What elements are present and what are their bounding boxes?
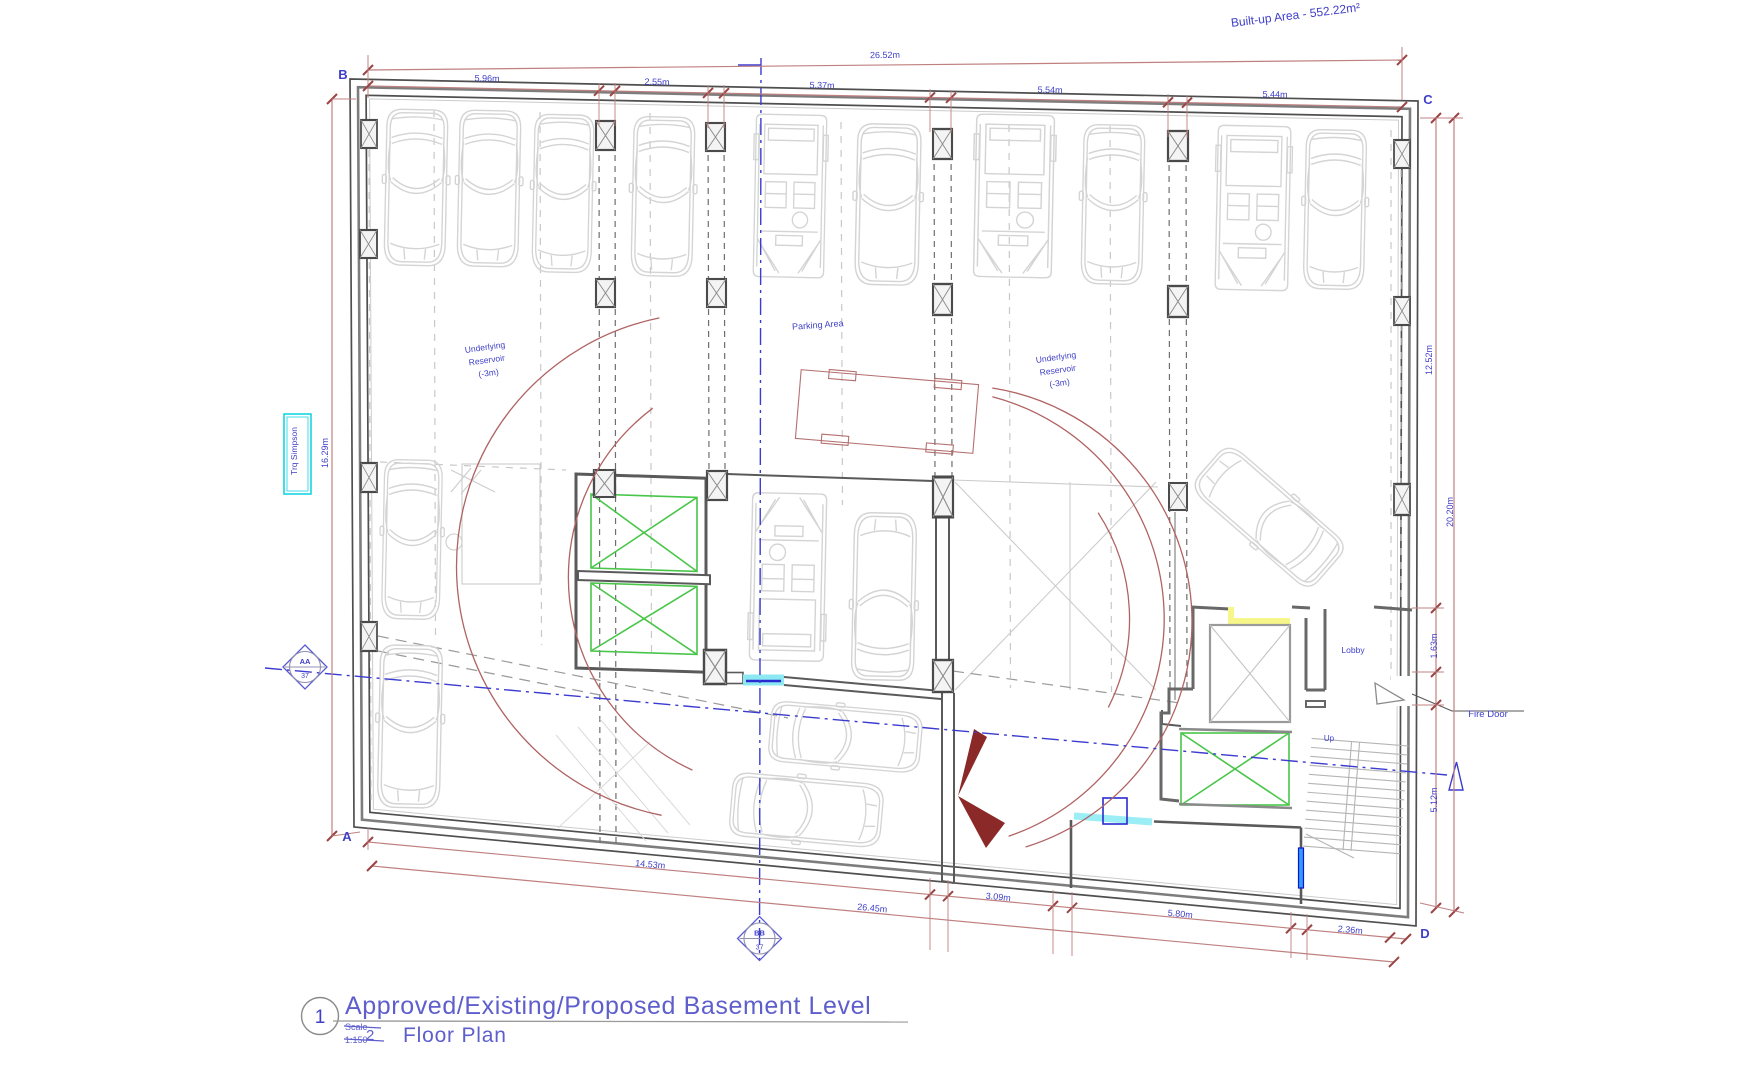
svg-text:2.55m: 2.55m bbox=[644, 77, 669, 88]
svg-text:A: A bbox=[342, 829, 352, 844]
svg-text:(-3m): (-3m) bbox=[478, 367, 500, 380]
svg-text:37: 37 bbox=[301, 673, 309, 680]
svg-text:Reservoir: Reservoir bbox=[1039, 363, 1077, 378]
svg-text:5.54m: 5.54m bbox=[1037, 85, 1062, 96]
svg-text:5.37m: 5.37m bbox=[809, 80, 834, 91]
svg-text:Parking Area: Parking Area bbox=[792, 318, 844, 332]
svg-text:12.52m: 12.52m bbox=[1424, 345, 1434, 375]
svg-text:1.63m: 1.63m bbox=[1429, 633, 1439, 658]
svg-text:BB: BB bbox=[754, 929, 765, 938]
svg-text:16.29m: 16.29m bbox=[320, 438, 330, 468]
svg-text:Trq Simpson: Trq Simpson bbox=[289, 427, 299, 475]
svg-text:2.36m: 2.36m bbox=[1337, 924, 1363, 936]
svg-text:14.53m: 14.53m bbox=[635, 858, 666, 871]
svg-text:C: C bbox=[1423, 92, 1433, 107]
svg-text:D: D bbox=[1420, 926, 1429, 941]
svg-text:Reservoir: Reservoir bbox=[468, 353, 506, 368]
svg-text:B: B bbox=[338, 67, 347, 82]
svg-text:37: 37 bbox=[756, 945, 764, 952]
svg-text:5.96m: 5.96m bbox=[474, 73, 499, 84]
svg-text:26.52m: 26.52m bbox=[870, 50, 900, 60]
svg-text:Fire Door: Fire Door bbox=[1468, 709, 1508, 720]
svg-text:Built-up Area - 552.22m²: Built-up Area - 552.22m² bbox=[1230, 0, 1361, 30]
svg-text:(-3m): (-3m) bbox=[1049, 377, 1071, 390]
svg-text:Up: Up bbox=[1324, 734, 1335, 743]
svg-text:2: 2 bbox=[366, 1027, 374, 1044]
svg-text:Floor Plan: Floor Plan bbox=[403, 1024, 507, 1047]
svg-text:AA: AA bbox=[300, 657, 311, 666]
svg-text:3.09m: 3.09m bbox=[985, 891, 1011, 903]
svg-text:Approved/Existing/Proposed Bas: Approved/Existing/Proposed Basement Leve… bbox=[345, 992, 871, 1020]
svg-text:5.80m: 5.80m bbox=[1167, 908, 1193, 920]
svg-text:20.20m: 20.20m bbox=[1445, 497, 1455, 527]
svg-text:5.12m: 5.12m bbox=[1429, 787, 1439, 812]
svg-text:Lobby: Lobby bbox=[1341, 645, 1365, 655]
svg-text:5.44m: 5.44m bbox=[1262, 89, 1287, 100]
svg-text:1: 1 bbox=[315, 1007, 326, 1028]
